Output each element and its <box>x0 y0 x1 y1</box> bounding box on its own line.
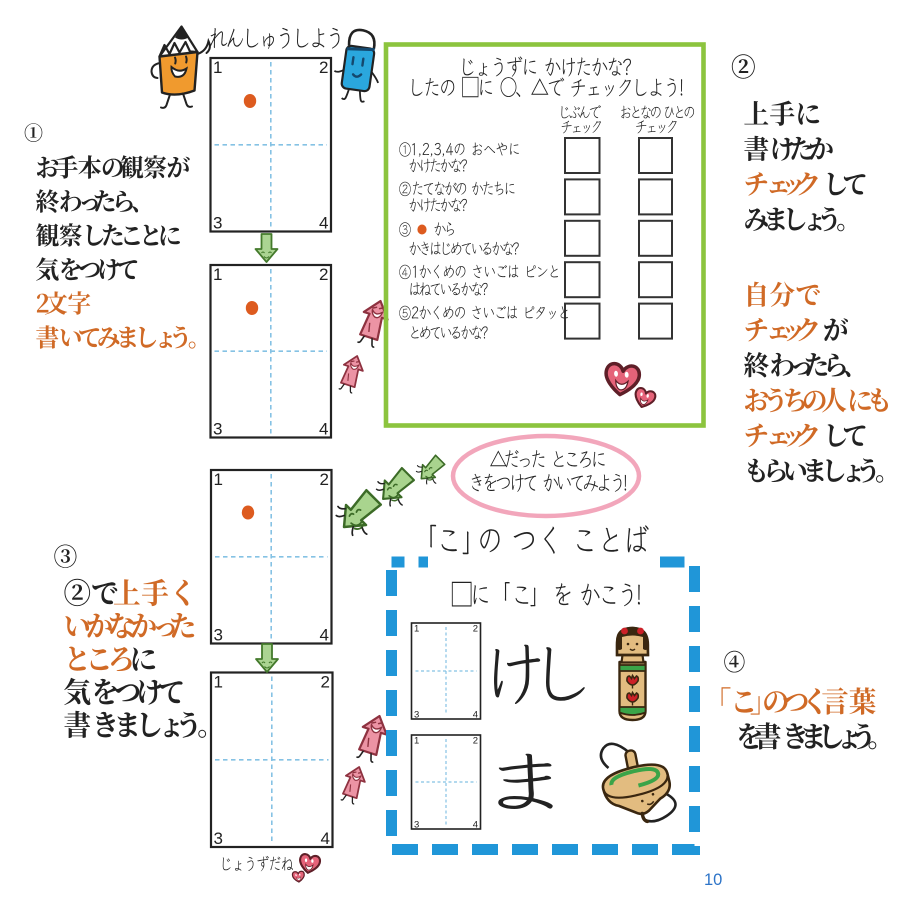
svg-text:4: 4 <box>319 419 328 438</box>
svg-text:3: 3 <box>214 829 223 848</box>
svg-text:2: 2 <box>320 470 329 489</box>
svg-text:1: 1 <box>214 673 223 692</box>
svg-text:2: 2 <box>321 673 330 692</box>
svg-text:3: 3 <box>213 213 222 232</box>
svg-text:3: 3 <box>414 709 419 720</box>
svg-text:3: 3 <box>213 419 222 438</box>
svg-text:2: 2 <box>319 58 328 77</box>
svg-text:1: 1 <box>213 265 222 284</box>
svg-text:4: 4 <box>320 625 329 644</box>
svg-text:1: 1 <box>414 623 419 634</box>
svg-text:3: 3 <box>214 625 223 644</box>
svg-text:4: 4 <box>473 819 478 830</box>
svg-text:4: 4 <box>473 709 478 720</box>
svg-text:2: 2 <box>473 735 478 746</box>
svg-text:1: 1 <box>214 470 223 489</box>
svg-text:1: 1 <box>414 735 419 746</box>
svg-text:4: 4 <box>319 213 328 232</box>
svg-text:2: 2 <box>473 623 478 634</box>
svg-text:2: 2 <box>319 265 328 284</box>
svg-text:4: 4 <box>321 829 330 848</box>
svg-text:1: 1 <box>213 58 222 77</box>
svg-text:3: 3 <box>414 819 419 830</box>
svg-text:10: 10 <box>704 871 722 889</box>
